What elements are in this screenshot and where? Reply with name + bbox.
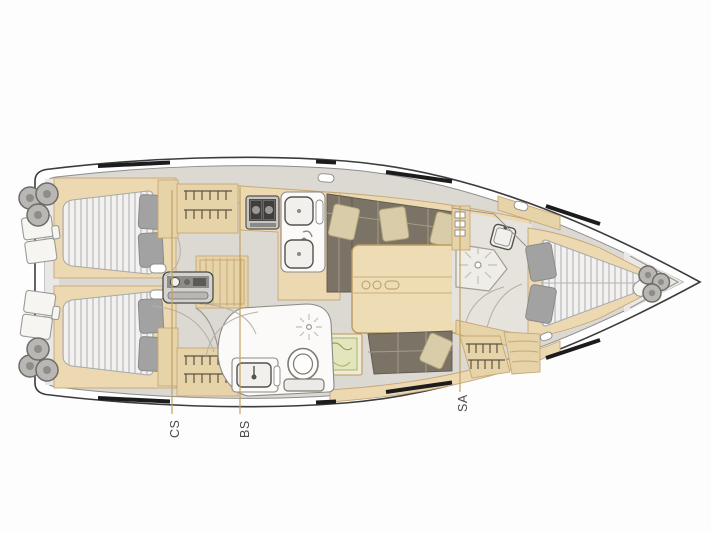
wardrobe <box>158 328 178 386</box>
bed-pillow <box>525 284 557 324</box>
hanging-locker-top <box>177 184 238 233</box>
wardrobe <box>158 180 178 238</box>
engine-compartment <box>163 272 213 303</box>
yacht-layout-page: CS BS SA <box>0 0 711 533</box>
forward-head <box>452 206 536 352</box>
aft-cabin-starboard <box>54 286 178 388</box>
aft-cabin-port <box>54 178 178 278</box>
door-latch <box>150 264 166 273</box>
label-bs: BS <box>238 420 252 438</box>
stove <box>246 196 279 229</box>
label-cs: CS <box>168 420 182 438</box>
salon-settee-lower <box>368 331 453 374</box>
yacht-interior-layout-plan: CS BS SA <box>0 0 711 533</box>
bed-pillow <box>525 242 557 282</box>
label-sa: SA <box>456 394 470 412</box>
galley-sink-unit <box>281 192 325 272</box>
settee-pillow <box>379 206 409 241</box>
head-sink <box>232 358 278 392</box>
salon-table <box>352 245 468 333</box>
